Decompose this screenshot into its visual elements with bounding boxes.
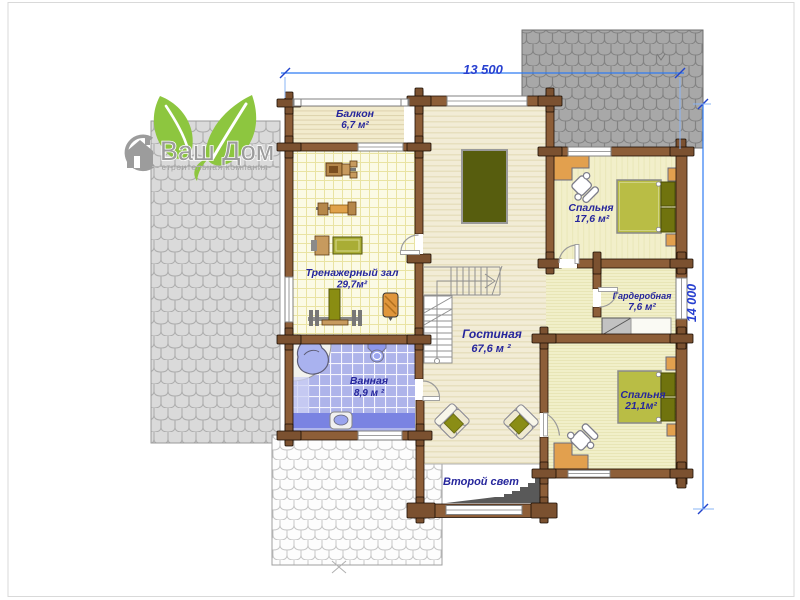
- svg-text:7,6 м²: 7,6 м²: [628, 302, 656, 313]
- svg-text:Балкон: Балкон: [336, 108, 375, 120]
- svg-text:Тренажерный зал: Тренажерный зал: [305, 267, 399, 279]
- svg-text:Гардеробная: Гардеробная: [613, 291, 672, 301]
- svg-text:Второй свет: Второй свет: [443, 476, 519, 488]
- svg-text:8,9 м ²: 8,9 м ²: [354, 388, 385, 399]
- svg-text:67,6 м ²: 67,6 м ²: [471, 343, 511, 355]
- svg-text:17,6 м²: 17,6 м²: [575, 213, 610, 225]
- svg-text:6,7 м²: 6,7 м²: [341, 120, 369, 131]
- svg-text:Гостиная: Гостиная: [462, 327, 522, 341]
- svg-text:Ванная: Ванная: [350, 375, 388, 387]
- svg-text:29,7м²: 29,7м²: [336, 280, 368, 291]
- svg-text:13 500: 13 500: [463, 62, 504, 77]
- svg-text:21,1м²: 21,1м²: [624, 400, 657, 412]
- svg-text:строительная компания: строительная компания: [162, 162, 269, 172]
- svg-text:14 000: 14 000: [685, 284, 699, 322]
